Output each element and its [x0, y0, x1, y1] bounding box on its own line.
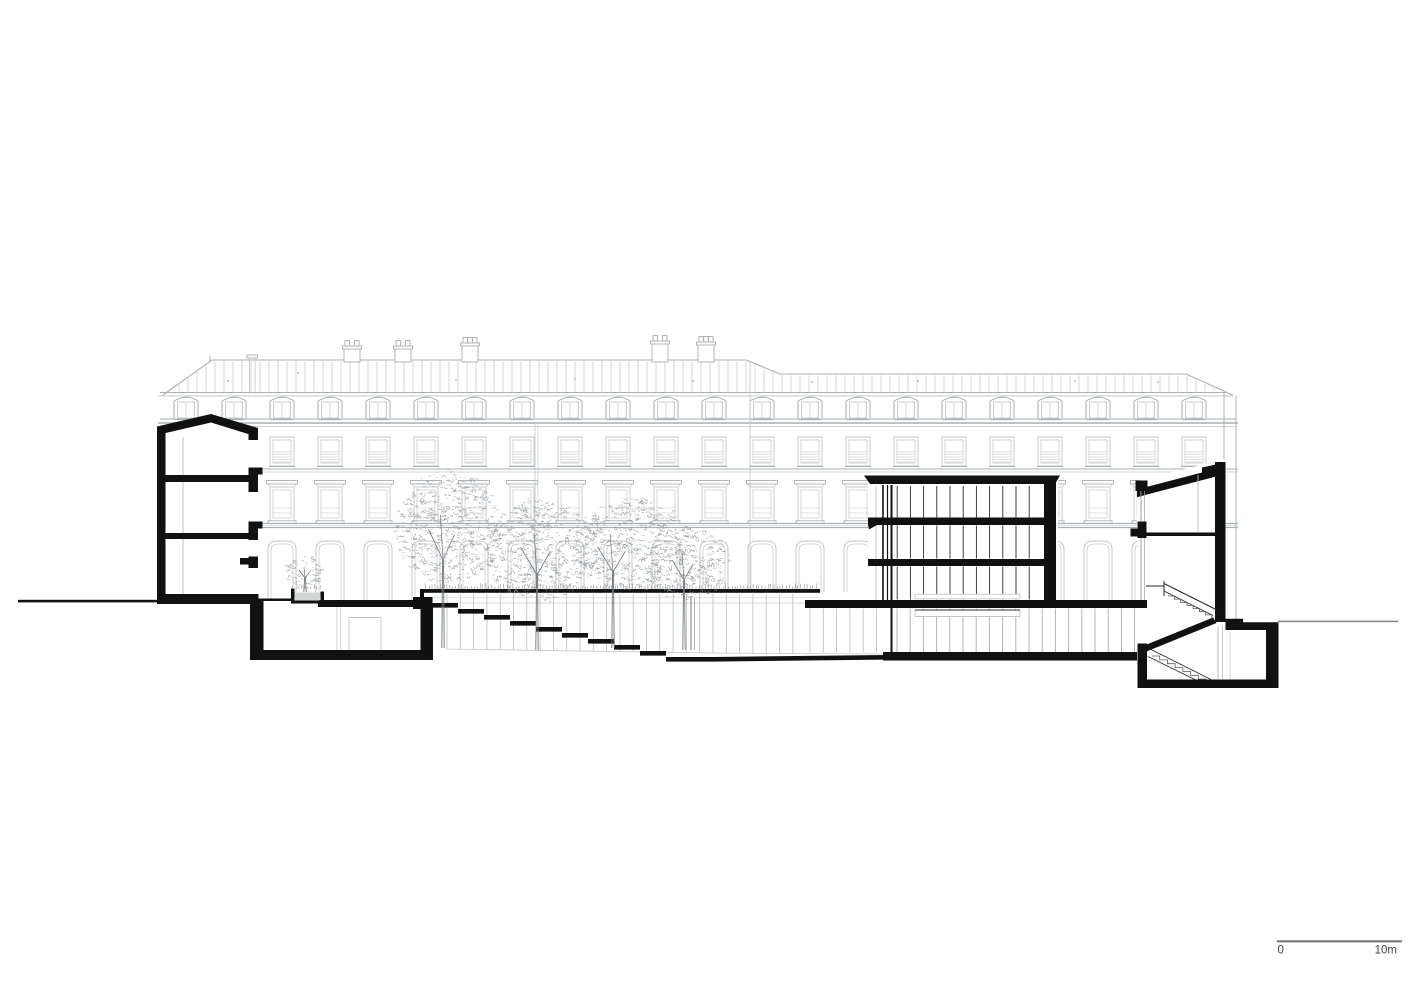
- interior-mask: [157, 416, 258, 604]
- basement-floor-slab: [883, 652, 1147, 661]
- section-drawing: 0 10m: [0, 0, 1415, 1000]
- scale-bar: 0 10m: [1277, 941, 1402, 956]
- ground-slab-main: [805, 600, 1147, 608]
- left-building-cut: [157, 414, 263, 604]
- roof-slab: [864, 476, 1060, 485]
- ground-line-left: [18, 600, 157, 603]
- stairwell-cut: [1125, 459, 1279, 688]
- tree: [285, 556, 323, 592]
- ground-line-right: [1278, 621, 1398, 623]
- chimneys: [247, 336, 716, 395]
- drawing-canvas: 0 10m: [0, 0, 1415, 1000]
- scale-zero-label: 0: [1278, 945, 1284, 957]
- mansard-roof: [158, 356, 1233, 396]
- attic-window-row: [173, 437, 1207, 467]
- scale-max-label: 10m: [1375, 945, 1397, 957]
- dormer-row: [174, 397, 1206, 419]
- pavilion-cut: [864, 476, 1147, 653]
- interior-mask: [264, 607, 421, 650]
- interior-mask: [1137, 459, 1278, 688]
